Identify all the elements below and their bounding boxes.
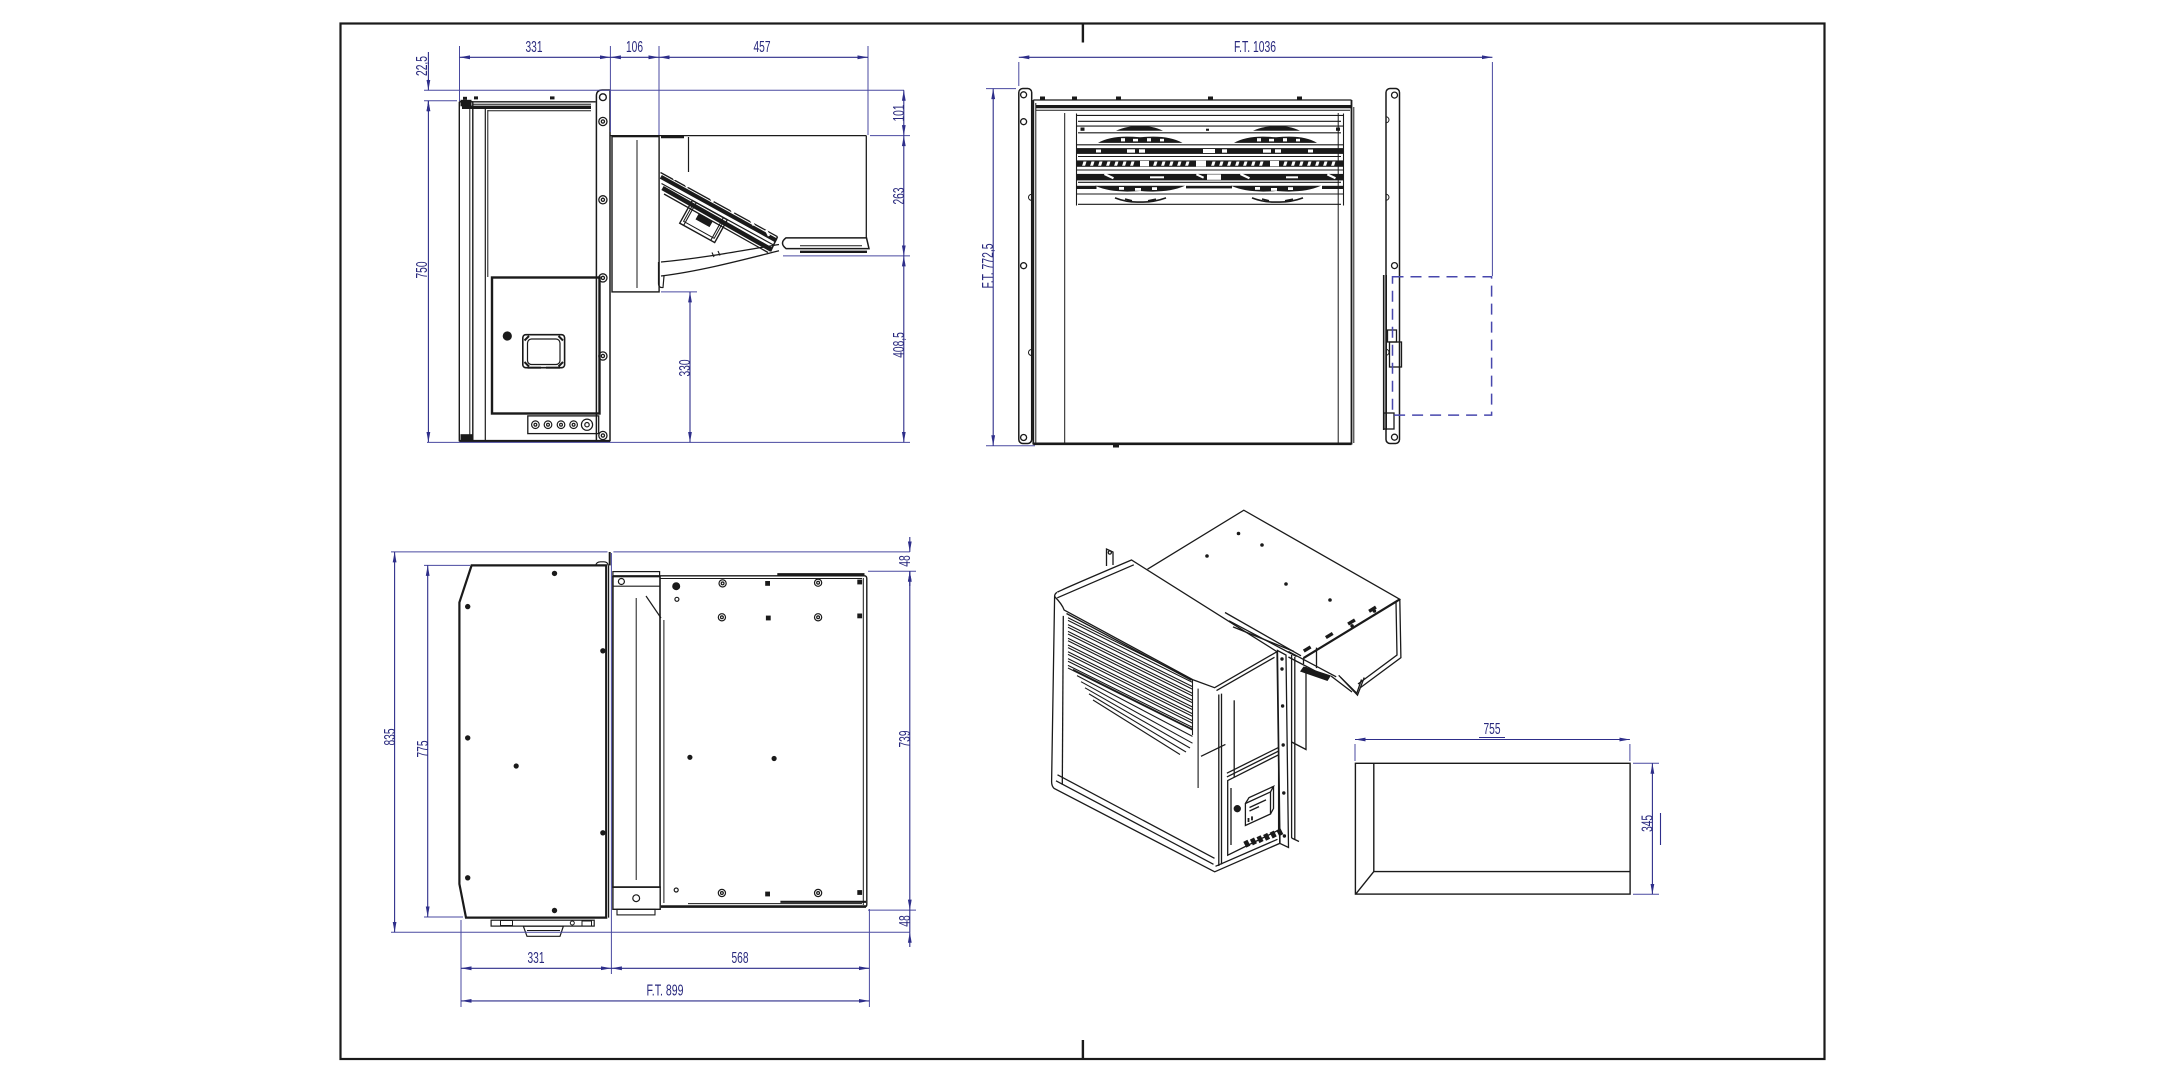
svg-text:775: 775	[415, 741, 432, 758]
svg-text:101: 101	[891, 105, 908, 122]
svg-text:48: 48	[897, 915, 914, 927]
svg-text:739: 739	[897, 731, 914, 748]
svg-text:263: 263	[891, 188, 908, 205]
svg-text:345: 345	[1639, 815, 1656, 832]
svg-text:331: 331	[526, 39, 543, 56]
svg-text:F.T. 899: F.T. 899	[647, 983, 684, 1000]
svg-text:330: 330	[677, 359, 694, 376]
svg-text:F.T. 772,5: F.T. 772,5	[980, 244, 997, 289]
svg-text:408,5: 408,5	[891, 332, 908, 358]
svg-text:331: 331	[528, 950, 545, 967]
svg-text:835: 835	[382, 729, 399, 746]
svg-text:755: 755	[1484, 721, 1501, 738]
svg-text:750: 750	[414, 261, 431, 278]
svg-text:106: 106	[626, 39, 643, 56]
svg-text:22,5: 22,5	[414, 56, 431, 76]
svg-text:F.T. 1036: F.T. 1036	[1234, 39, 1276, 56]
svg-text:568: 568	[732, 950, 749, 967]
svg-text:457: 457	[754, 39, 771, 56]
svg-text:48: 48	[897, 555, 914, 567]
